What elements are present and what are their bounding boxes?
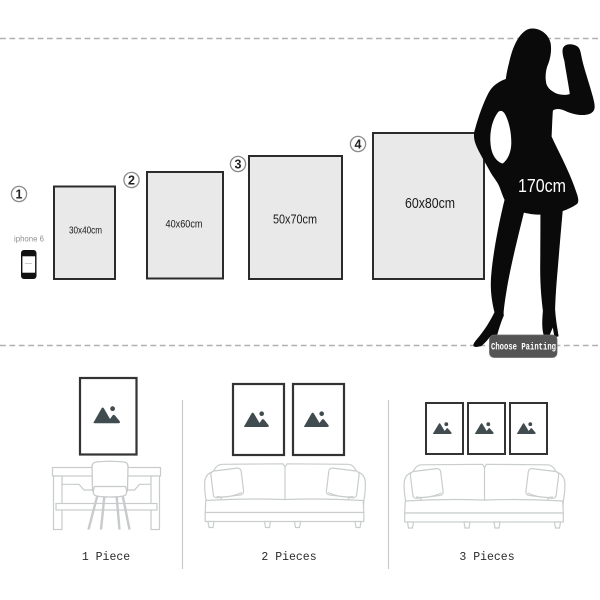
svg-text:2: 2 — [128, 174, 135, 188]
svg-text:4: 4 — [355, 138, 362, 152]
svg-text:30x40cm: 30x40cm — [69, 226, 102, 237]
svg-text:2 Pieces: 2 Pieces — [261, 551, 316, 564]
svg-text:3: 3 — [235, 158, 242, 172]
svg-text:170cm: 170cm — [518, 175, 566, 196]
svg-text:1: 1 — [16, 188, 23, 202]
svg-text:3 Pieces: 3 Pieces — [459, 551, 514, 564]
svg-text:1 Piece: 1 Piece — [82, 551, 130, 564]
svg-text:60x80cm: 60x80cm — [405, 196, 455, 212]
svg-text:50x70cm: 50x70cm — [273, 212, 317, 227]
svg-text:Choose Painting: Choose Painting — [491, 342, 556, 354]
svg-text:40x60cm: 40x60cm — [166, 219, 203, 231]
svg-text:iphone 6: iphone 6 — [14, 235, 44, 244]
